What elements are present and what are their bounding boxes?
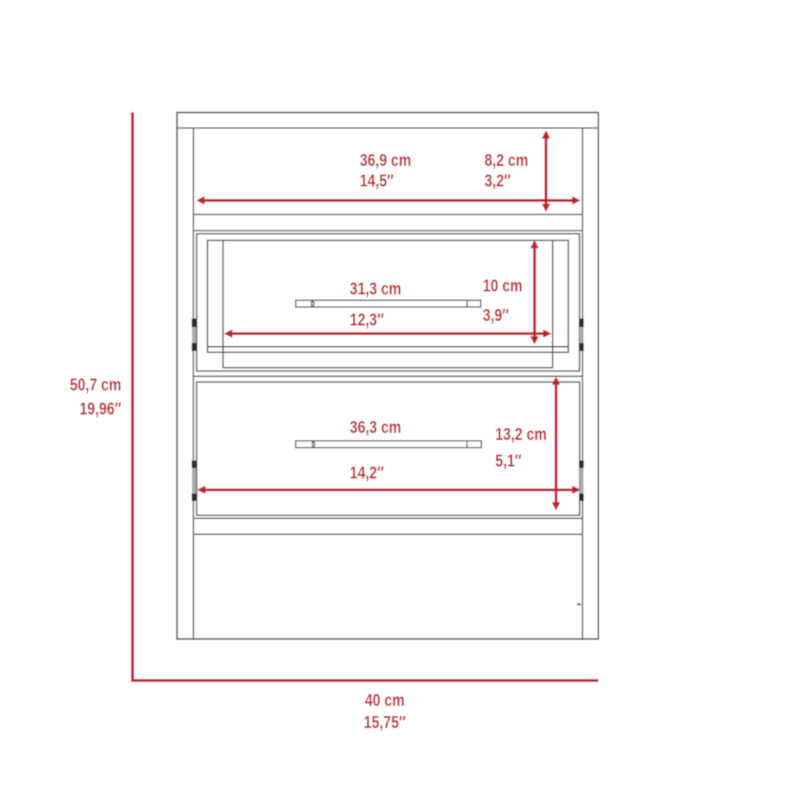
- svg-text:36,3 cm: 36,3 cm: [350, 417, 401, 437]
- svg-text:3,2″: 3,2″: [485, 171, 511, 191]
- svg-text:40 cm: 40 cm: [365, 690, 405, 710]
- svg-text:3,9″: 3,9″: [483, 305, 509, 325]
- svg-text:10 cm: 10 cm: [483, 276, 523, 296]
- svg-text:12,3″: 12,3″: [350, 310, 384, 330]
- svg-text:31,3 cm: 31,3 cm: [350, 279, 401, 299]
- svg-text:36,9 cm: 36,9 cm: [360, 150, 411, 170]
- svg-text:13,2 cm: 13,2 cm: [495, 424, 546, 444]
- svg-text:8,2 cm: 8,2 cm: [485, 150, 529, 170]
- svg-text:19,96″: 19,96″: [79, 399, 121, 419]
- svg-text:14,2″: 14,2″: [350, 463, 384, 483]
- svg-text:15,75″: 15,75″: [364, 712, 406, 732]
- svg-text:5,1″: 5,1″: [495, 451, 521, 471]
- svg-text:14,5″: 14,5″: [360, 171, 394, 191]
- svg-text:50,7 cm: 50,7 cm: [70, 375, 121, 395]
